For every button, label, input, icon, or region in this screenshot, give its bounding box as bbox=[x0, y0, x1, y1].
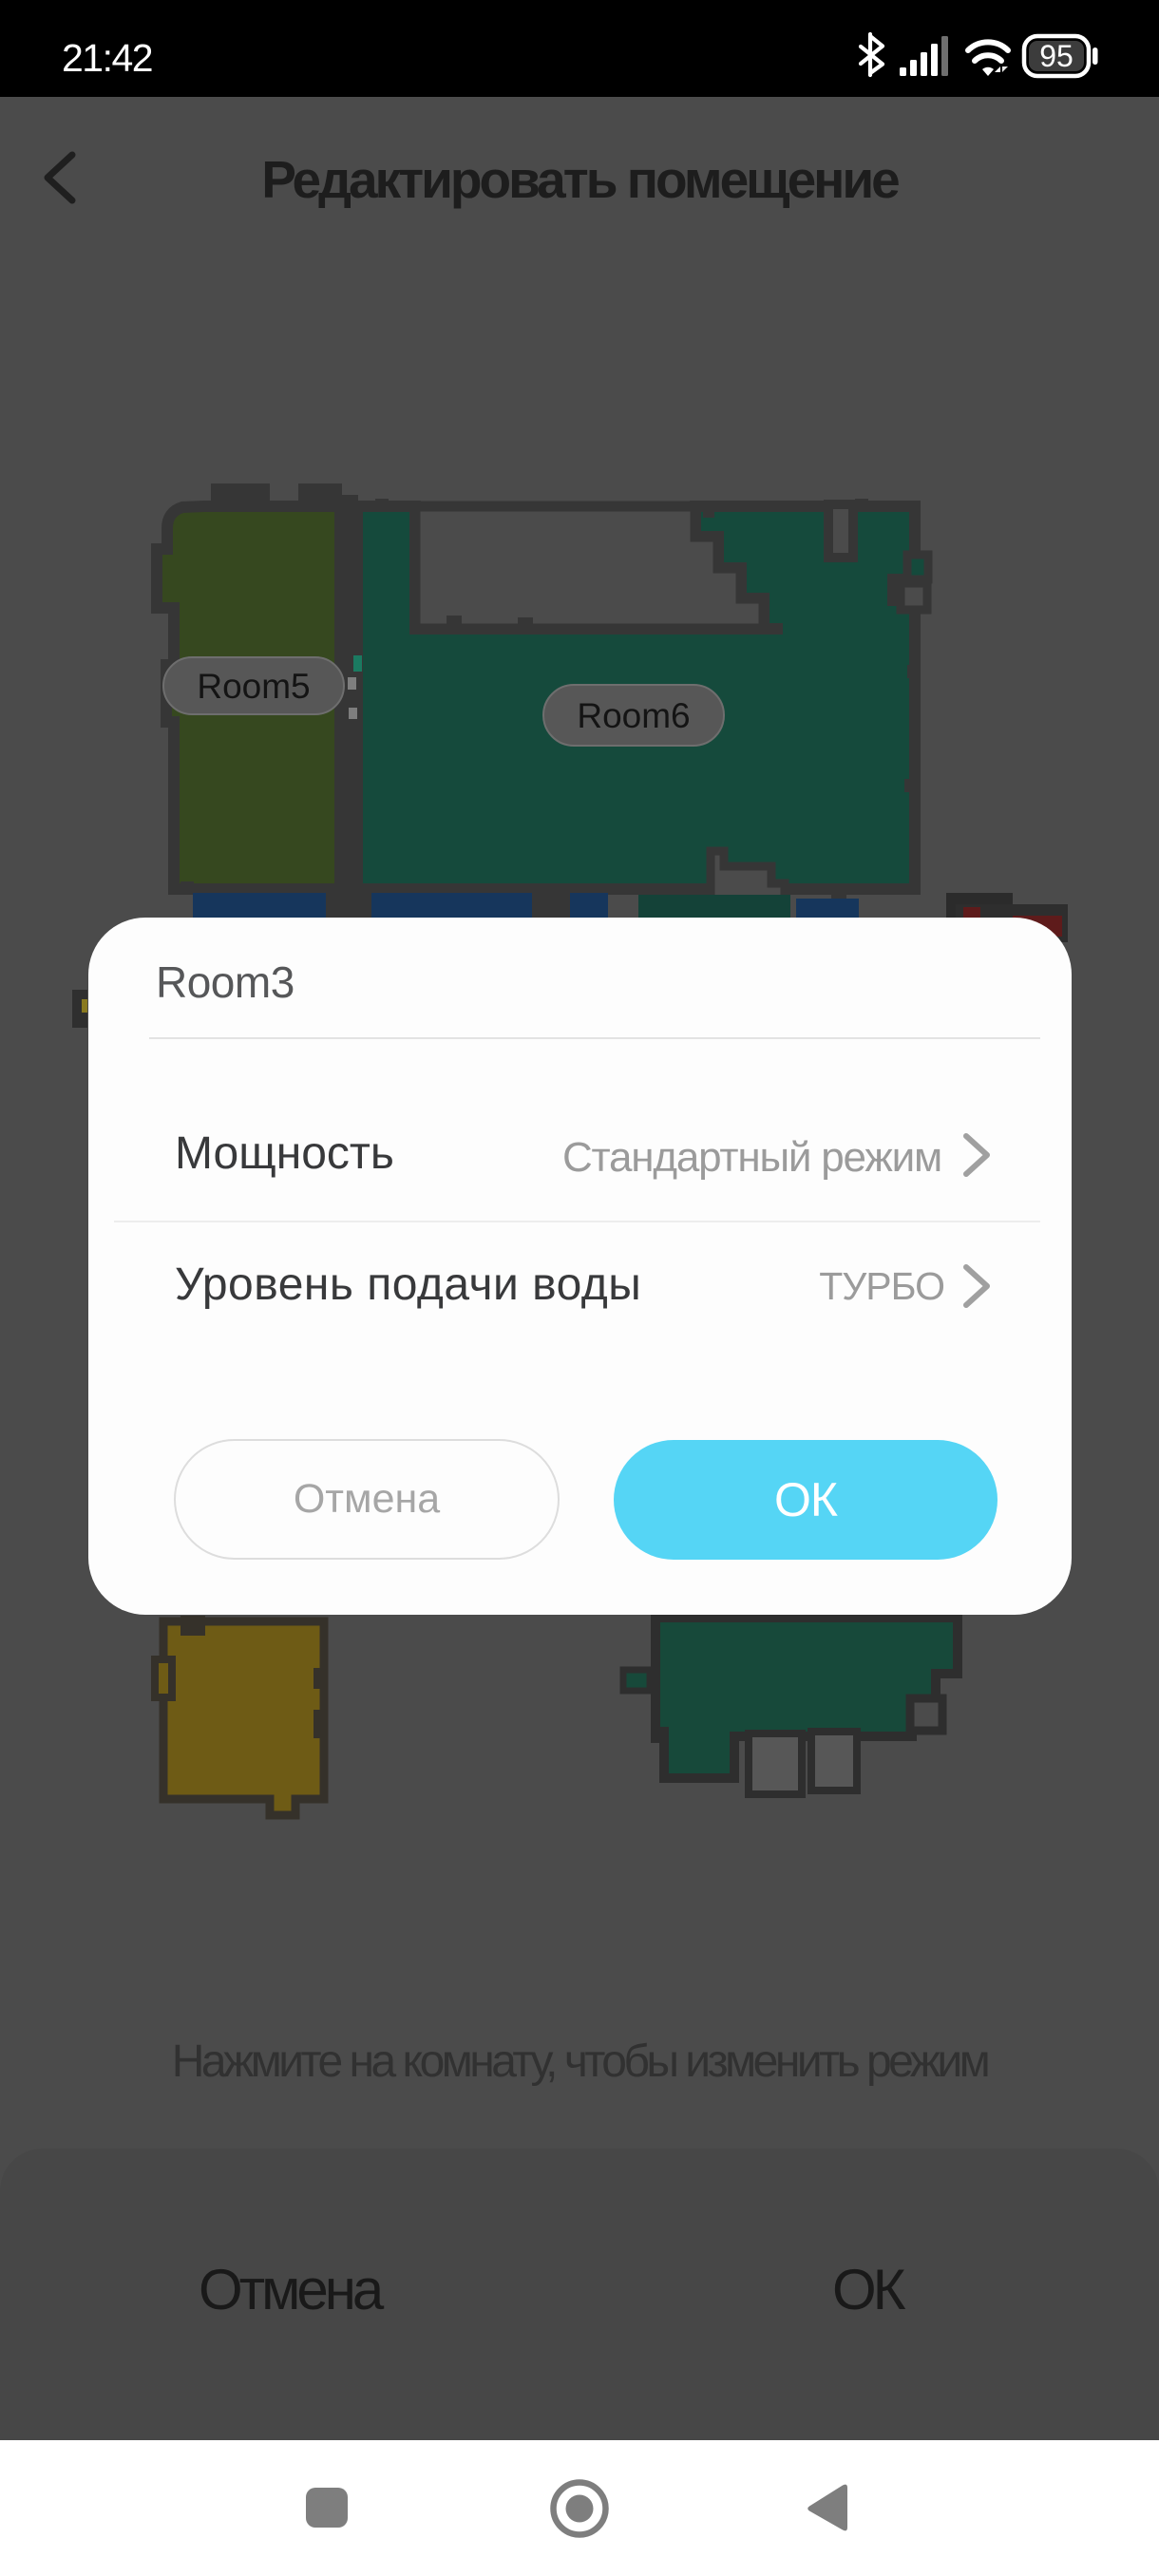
svg-text:Room6: Room6 bbox=[577, 696, 690, 735]
svg-text:95: 95 bbox=[1039, 39, 1073, 73]
svg-text:Room5: Room5 bbox=[197, 667, 310, 706]
